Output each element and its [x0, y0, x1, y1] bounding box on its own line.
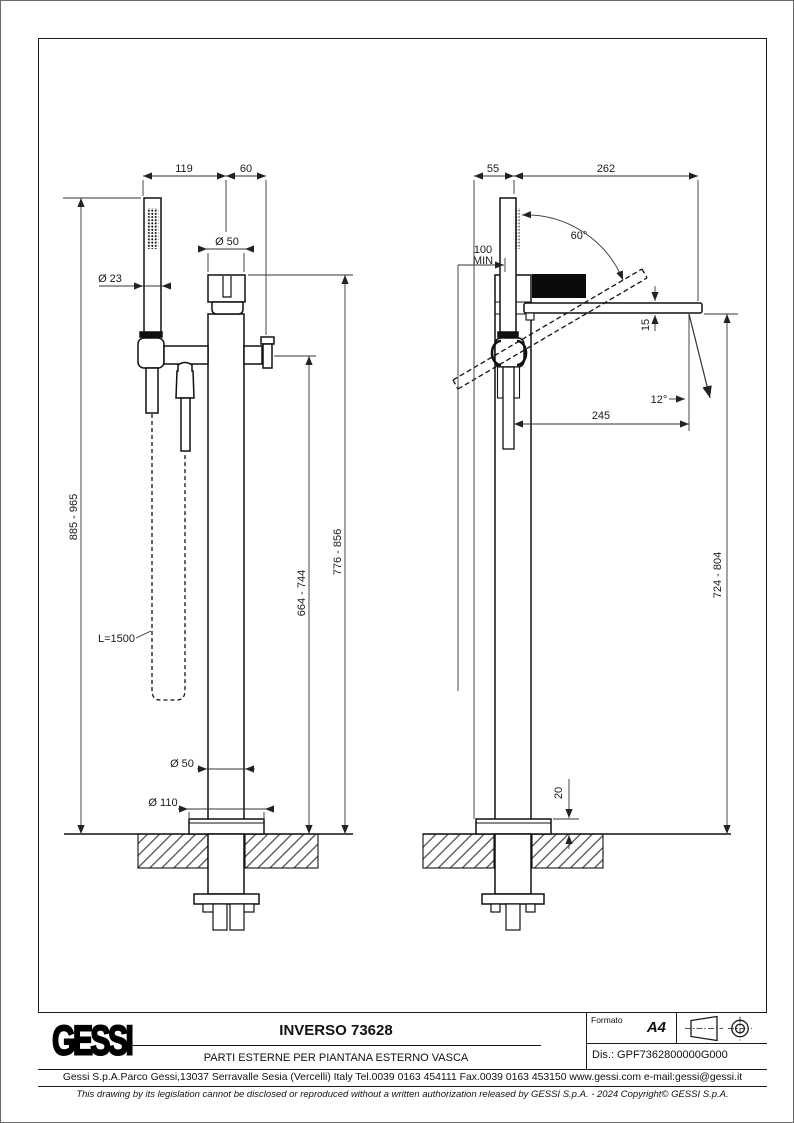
- front-column-underfloor: [208, 834, 244, 894]
- side-spray-face: [514, 208, 520, 249]
- format-cell: Formato A4: [586, 1013, 677, 1044]
- front-view: [64, 198, 353, 930]
- dim-245: 245: [592, 410, 610, 422]
- front-spray-face: [148, 208, 159, 249]
- side-tube-flange-right: [514, 367, 520, 398]
- front-head-block: [208, 275, 245, 302]
- format-value: A4: [647, 1019, 666, 1036]
- angle-12: 12°: [651, 394, 668, 406]
- front-underfloor-flange: [194, 894, 259, 904]
- side-handle: [532, 274, 586, 298]
- side-bolt-right: [526, 904, 535, 912]
- front-outlet-cap: [261, 337, 274, 344]
- dim-15: 15: [640, 319, 652, 331]
- dim-dia50-top: Ø 50: [215, 236, 239, 248]
- side-shower-band: [498, 332, 518, 337]
- side-tube-flange-left: [498, 367, 504, 398]
- dim-dia23: Ø 23: [98, 273, 122, 285]
- side-spout: [524, 303, 702, 313]
- title-cell: INVERSO 73628 PARTI ESTERNE PER PIANTANA…: [131, 1015, 541, 1067]
- drawing-title: INVERSO 73628: [131, 1015, 541, 1046]
- side-hatch-right: [532, 834, 603, 868]
- dim-724-804: 724 - 804: [712, 552, 724, 598]
- side-bolt-left: [491, 904, 500, 912]
- side-view: [423, 198, 731, 930]
- front-collar: [212, 302, 243, 314]
- min-clearance-label: MIN: [473, 255, 493, 267]
- drawing-subtitle: PARTI ESTERNE PER PIANTANA ESTERNO VASCA: [131, 1046, 541, 1064]
- side-base-plate: [476, 819, 551, 834]
- projection-cell: [677, 1013, 767, 1044]
- copyright-line: This drawing by its legislation cannot b…: [38, 1086, 767, 1103]
- front-hose-top: [181, 398, 190, 451]
- dim-885-965: 885 - 965: [68, 494, 80, 540]
- dim-dia50-bottom: Ø 50: [170, 758, 194, 770]
- front-hose-dashed: [152, 414, 185, 700]
- front-pipe-right: [230, 904, 244, 930]
- drawing-number: Dis.: GPF7362800000G000: [586, 1044, 767, 1069]
- dim-262: 262: [597, 163, 615, 175]
- front-hatch-right: [245, 834, 318, 868]
- side-pipe: [506, 904, 520, 930]
- front-outlet-body: [263, 344, 272, 368]
- angle-60: 60°: [571, 230, 588, 242]
- front-shower-band: [140, 332, 162, 337]
- front-bracket: [138, 338, 164, 368]
- format-label: Formato: [591, 1015, 623, 1025]
- side-spout-step: [526, 313, 534, 320]
- technical-drawing: 119 60 Ø 50 Ø 23 885 - 965 776 - 856 664…: [1, 1, 794, 1011]
- front-view-labels: 119 60 Ø 50 Ø 23 885 - 965 776 - 856 664…: [68, 163, 344, 809]
- front-pipe-left: [213, 904, 227, 930]
- first-angle-projection-icon: [677, 1013, 767, 1044]
- title-block: GESSI INVERSO 73628 PARTI ESTERNE PER PI…: [38, 1012, 767, 1102]
- side-underfloor-flange: [482, 894, 544, 904]
- dim-60: 60: [240, 163, 252, 175]
- side-shower-tube: [503, 367, 514, 449]
- front-bracket-arm: [164, 346, 208, 364]
- front-shower-tube: [146, 368, 158, 413]
- drawing-sheet: 119 60 Ø 50 Ø 23 885 - 965 776 - 856 664…: [0, 0, 794, 1123]
- dim-55: 55: [487, 163, 499, 175]
- front-outlet-stub: [244, 346, 262, 364]
- front-column: [208, 314, 244, 834]
- side-column-underfloor: [495, 834, 531, 894]
- company-address: Gessi S.p.A.Parco Gessi,13037 Serravalle…: [38, 1069, 767, 1086]
- front-hose-cone: [176, 363, 194, 399]
- dim-664-744: 664 - 744: [296, 570, 308, 616]
- front-hatch-left: [138, 834, 208, 868]
- dim-776-856: 776 - 856: [332, 529, 344, 575]
- dim-dia110: Ø 110: [148, 797, 177, 809]
- side-hatch-left: [423, 834, 494, 868]
- front-base-flange: [189, 819, 264, 834]
- hose-length-label: L=1500: [98, 633, 135, 645]
- dim-20: 20: [553, 787, 565, 799]
- dim-119: 119: [175, 163, 193, 175]
